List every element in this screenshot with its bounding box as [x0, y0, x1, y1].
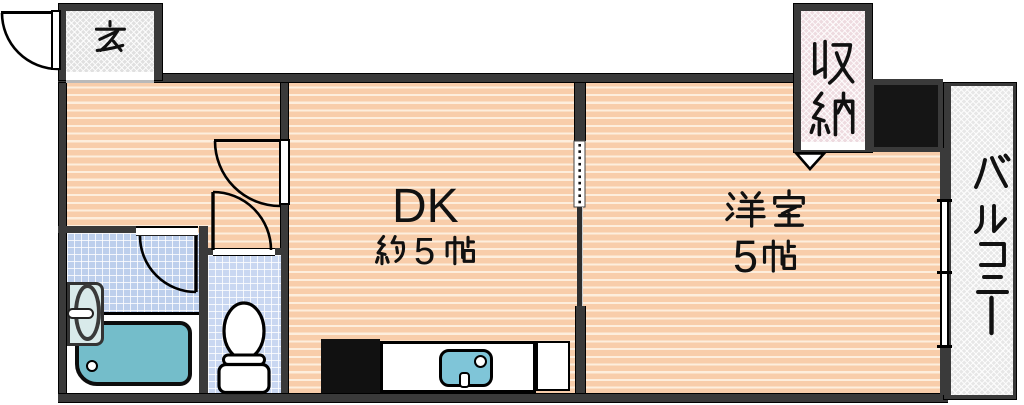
svg-text:5: 5 — [414, 231, 435, 273]
svg-text:5: 5 — [733, 231, 758, 282]
